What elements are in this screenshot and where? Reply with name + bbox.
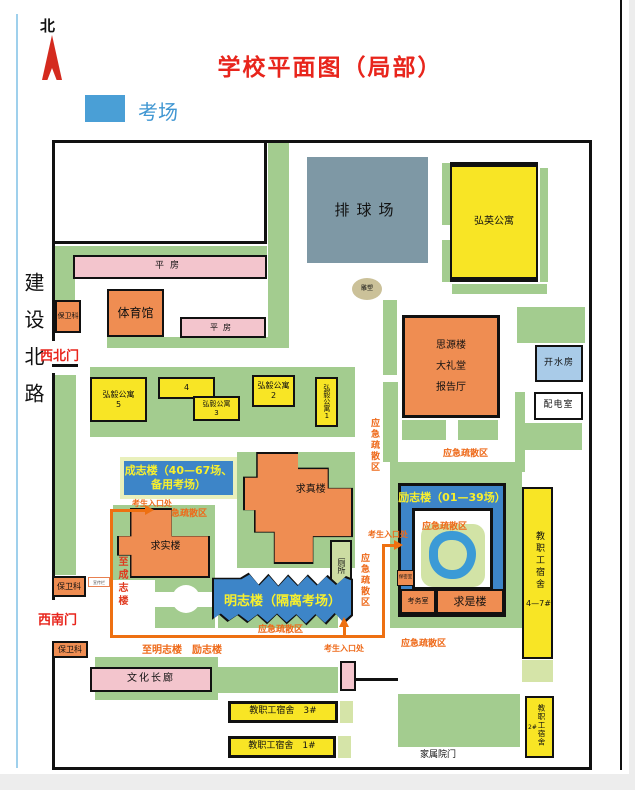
evac-zone-label: 应急疏散区 <box>258 622 303 635</box>
lawn <box>268 143 289 345</box>
exam-affairs-room: 考务室 <box>400 589 436 614</box>
flat-house-south: 平房 <box>180 317 266 338</box>
lawn <box>518 423 582 450</box>
staff-dorm-2-label: 教职工宿舍 <box>536 704 547 747</box>
lawn-light <box>338 736 351 758</box>
secrecy-room: 保密室 <box>397 570 414 586</box>
route-arrow-east <box>394 540 403 550</box>
lawn <box>458 420 498 440</box>
qiuzhen-label: 求真楼 <box>296 480 326 495</box>
mingzhi-label: 明志楼（隔离考场） <box>212 590 353 609</box>
small-pink-block <box>340 661 356 691</box>
route-arrow-west <box>145 505 154 515</box>
exam-entrance-east: 考生入口处 <box>368 529 408 540</box>
lawn <box>452 284 547 294</box>
lawn <box>442 240 450 282</box>
lawn <box>442 163 450 225</box>
page-right-shadow <box>629 0 635 790</box>
lawn-light <box>522 660 553 682</box>
bulletin-board: 宣传栏 <box>88 577 110 587</box>
road-edge-line <box>16 14 18 768</box>
hongying-apartment: 弘英公寓 <box>450 162 538 282</box>
staff-dorm-2-number: 2# <box>528 724 537 731</box>
hongyi-apartment-3: 弘毅公寓 3 <box>193 396 240 421</box>
route-stem-mid <box>343 626 346 636</box>
staff-dorm-4-7-label: 教职工宿舍 <box>533 531 546 591</box>
legend-label: 考场 <box>138 96 178 125</box>
security-office-mid: 保卫科 <box>52 576 86 597</box>
lawn <box>540 168 548 282</box>
staff-dorm-1: 教职工宿舍 1# <box>228 736 336 758</box>
qiushi-west-label: 求实楼 <box>150 537 180 552</box>
wall-line <box>356 678 398 681</box>
security-office-south: 保卫科 <box>52 641 88 658</box>
staff-dorm-4-7: 教职工宿舍 4—7# <box>522 487 553 659</box>
compass-label: 北 <box>40 15 55 36</box>
siyuan-building: 思源楼 大礼堂 报告厅 <box>402 315 500 418</box>
lawn-circle <box>172 585 200 613</box>
lawn <box>398 694 520 747</box>
fence-line <box>52 364 78 367</box>
exam-entrance-mid: 考生入口处 <box>324 643 364 654</box>
lawn <box>107 337 289 348</box>
lawn <box>55 375 76 575</box>
route-line-west <box>110 509 113 638</box>
route-line-west-top <box>112 509 146 512</box>
evac-zone-label: 应急疏散区 <box>358 553 371 608</box>
qiushi-east-building: 求是楼 <box>436 589 504 614</box>
route-arrow-mid-up <box>339 617 349 627</box>
volleyball-court: 排球场 <box>307 157 428 263</box>
compass-arrow-notch <box>47 68 57 81</box>
evac-zone-label: 应急疏散区 <box>422 519 467 532</box>
gymnasium: 体育馆 <box>107 289 164 337</box>
sculpture: 雕塑 <box>352 278 382 300</box>
lawn <box>383 300 397 375</box>
hongyi-apartment-5: 弘毅公寓 5 <box>90 377 147 422</box>
courtyard-pond-ring <box>429 531 476 579</box>
page-right-line <box>620 0 622 770</box>
lawn <box>402 420 446 440</box>
lawn <box>55 255 75 302</box>
lawn <box>383 382 398 462</box>
security-office-north: 保卫科 <box>55 300 81 333</box>
staff-dorm-3: 教职工宿舍 3# <box>228 701 338 723</box>
lawn <box>218 667 338 693</box>
legend-swatch <box>85 95 125 122</box>
playground-area <box>55 143 267 244</box>
evac-zone-label: 应急疏散区 <box>368 418 381 473</box>
culture-corridor: 文化长廊 <box>90 667 212 692</box>
family-gate-label: 家属院门 <box>420 747 456 760</box>
gate-northwest-label: 西北门 <box>40 345 79 364</box>
lizhi-label: 励志楼（01—39场） <box>398 489 506 505</box>
staff-dorm-2: 教职工宿舍 2# <box>525 696 554 758</box>
route-line-east <box>382 544 385 638</box>
chengzhi-building: 成志楼（40—67场、 备用考场） <box>120 457 237 499</box>
evac-zone-label: 应急疏散区 <box>443 446 488 459</box>
lawn-light <box>340 701 353 723</box>
hongyi-apartment-2: 弘毅公寓 2 <box>252 375 295 407</box>
power-room: 配电室 <box>534 392 583 420</box>
lawn <box>55 246 267 255</box>
lawn <box>517 307 585 343</box>
page-title: 学校平面图（局部） <box>155 48 505 82</box>
lawn <box>511 462 522 628</box>
to-chengzhi-label: 至成志楼 <box>114 556 129 608</box>
to-mingzhi-lizhi-label: 至明志楼 励志楼 <box>142 641 222 656</box>
evac-zone-label: 应急疏散区 <box>401 636 446 649</box>
hot-water-room: 开水房 <box>535 345 583 382</box>
staff-dorm-4-7-number: 4—7# <box>526 599 551 608</box>
hongyi-apartment-1: 弘毅公寓1 <box>315 377 338 427</box>
page-bottom-shadow <box>0 774 635 790</box>
flat-house-north: 平房 <box>73 255 267 279</box>
gate-southwest-label: 西南门 <box>38 609 77 628</box>
